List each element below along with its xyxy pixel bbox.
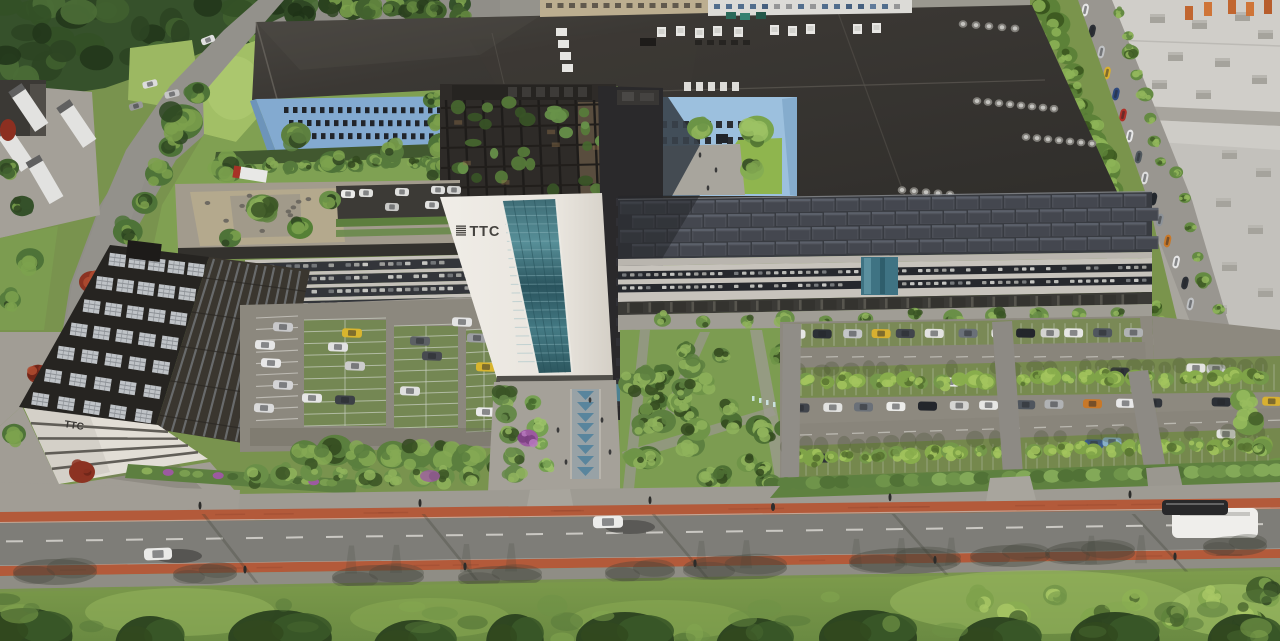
svg-text:TTC: TTC: [470, 224, 501, 240]
